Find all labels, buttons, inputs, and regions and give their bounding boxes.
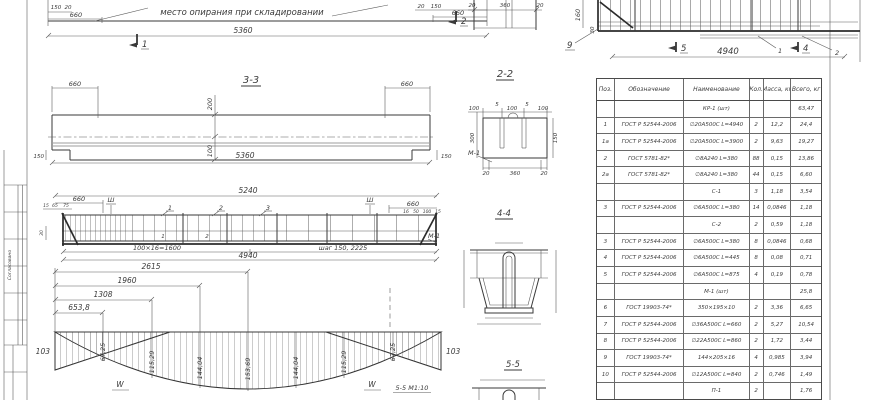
cell-mass [764,101,792,117]
cell-total: 1,49 [791,367,821,383]
moment-value-7: 67,25 [389,343,397,362]
moment-w-right: W [368,380,376,389]
cage-callout-1: 1 [778,47,782,55]
plan-dim-660-right: 660 [452,9,464,17]
moment-scale-note: 5-5 М1:10 [396,384,429,392]
cell-name: ∅20А500С L=3900 [684,134,749,150]
plan-dim-total: 5360 [233,26,252,35]
section-mark-4-arrow [790,46,798,51]
end-section-dim-20b: 20 [537,3,544,9]
cell-qty: 8 [750,234,764,250]
reinf-dim-4940: 4940 [238,251,257,260]
cell-name: ∅6А500С L=380 [684,201,749,217]
moment-w-left: W [116,380,124,389]
cell-doc [615,217,684,233]
reinf-dim-65: 65 [52,203,58,209]
cell-total: 19,27 [791,134,821,150]
reinf-dim-5240: 5240 [238,186,257,195]
s33-dim-150-right: 150 [441,154,452,160]
column-header-mass: Масса, кг [764,79,792,100]
s22-dim-5b: 5 [525,102,529,108]
cell-pos: 3 [597,201,615,217]
cage-dim-total: 4940 [717,47,739,57]
s33-dim-150-left: 150 [34,154,45,160]
reinf-dim-50: 50 [413,209,419,215]
cell-mass: 1,72 [764,334,792,350]
cell-pos [597,101,615,117]
column-header-name: Наименование [684,79,749,100]
cell-mass: 0,746 [764,367,792,383]
moment-dim-1960: 1960 [117,276,136,285]
cell-qty [750,101,764,117]
table-row: 1аГОСТ Р 52544-2006∅20А500С L=390029,631… [597,134,821,151]
moment-value-3: 144,04 [196,357,204,380]
cell-mass: 0,08 [764,250,792,266]
table-row: 3ГОСТ Р 52544-2006∅6А500С L=38080,08460,… [597,234,821,251]
cell-doc: ГОСТ 19903-74* [615,350,684,366]
table-row: П-121,76 [597,383,821,399]
s22-dim-100b: 100 [507,106,518,112]
table-row: 2аГОСТ 5781-82*∅8А240 L=380440,156,60 [597,167,821,184]
cell-doc: ГОСТ Р 52544-2006 [615,267,684,283]
section-4-4-view: 4-4 [464,209,556,324]
section-mark-2-arrow [448,20,456,25]
cell-doc: ГОСТ Р 52544-2006 [615,134,684,150]
cell-mass: 0,15 [764,151,792,167]
cell-name: ∅8А240 L=380 [684,151,749,167]
moment-dim-1308: 1308 [93,290,112,299]
reinf-dim-seg2: шаг 150, 2225 [319,244,368,252]
table-row: 8ГОСТ Р 52544-2006∅22А500С L=86021,723,4… [597,334,821,351]
cell-mass: 0,19 [764,267,792,283]
cell-doc: ГОСТ Р 52544-2006 [615,317,684,333]
table-row: 3ГОСТ Р 52544-2006∅6А500С L=380140,08461… [597,201,821,218]
cell-mass: 0,59 [764,217,792,233]
table-row: 9ГОСТ 19903-74*144×205×1640,9853,94 [597,350,821,367]
cell-total: 25,8 [791,284,821,300]
moment-value-6: 115,29 [340,351,348,374]
cell-qty: 2 [750,118,764,134]
moment-dim-653: 653,8 [68,303,90,312]
cell-pos: 2а [597,167,615,183]
cell-name: П-1 [684,383,749,399]
cell-doc [615,284,684,300]
cell-name: ∅6А500С L=380 [684,234,749,250]
storage-plan-view: 150 20 660 20 150 660 место опирания при… [46,0,489,50]
s22-dim-20b: 20 [541,171,548,177]
reinf-stirrups-wide [260,215,437,241]
cell-name: ∅8А240 L=380 [684,167,749,183]
section-5-5-title: 5-5 [506,360,520,370]
cage-elevation-view: 160 30 9 4940 5 4 1 2 [565,0,860,59]
column-header-pos: Поз. [597,79,615,100]
reinf-dim-16: 16 [403,209,409,215]
section-mark-4: 4 [803,44,808,54]
cell-doc: ГОСТ Р 52544-2006 [615,234,684,250]
cell-name: 350×195×10 [684,300,749,316]
s22-dim-360: 360 [510,171,521,177]
cell-pos: 8 [597,334,615,350]
cell-mass: 1,18 [764,184,792,200]
drawing-sheet: Согласовано 150 20 660 20 150 660 место … [0,0,870,400]
cell-name: М-1 (шт) [684,284,749,300]
cage-pos-9: 9 [567,41,572,51]
cell-qty: 14 [750,201,764,217]
cell-pos: 4 [597,250,615,266]
cell-pos: 1 [597,118,615,134]
cell-qty: 2 [750,383,764,399]
moment-value-5: 144,04 [292,357,300,380]
cell-mass: 0,15 [764,167,792,183]
cell-doc: ГОСТ Р 52544-2006 [615,250,684,266]
section-mark-5-arrow [668,46,676,51]
cell-doc [615,184,684,200]
cell-total: 24,4 [791,118,821,134]
reinf-bar-label-1: 1 [161,234,165,240]
s22-dim-5a: 5 [495,102,499,108]
cell-qty: 2 [750,334,764,350]
column-header-doc: Обозначение [615,79,684,100]
cell-total: 1,18 [791,201,821,217]
end-section-dim-20a: 20 [469,3,476,9]
cell-qty: 2 [750,317,764,333]
cell-mass: 0,985 [764,350,792,366]
table-row: 2ГОСТ 5781-82*∅8А240 L=380880,1513,86 [597,151,821,168]
reinf-dim-30: 30 [39,230,45,236]
s33-dim-200: 200 [206,98,214,110]
table-row: 4ГОСТ Р 52544-2006∅6А500С L=44580,080,71 [597,250,821,267]
table-row: 1ГОСТ Р 52544-2006∅20А500С L=4940212,224… [597,118,821,135]
cell-qty: 2 [750,300,764,316]
s22-dim-100c: 100 [538,106,549,112]
section-mark-2: 2 [461,17,466,27]
cell-qty: 2 [750,367,764,383]
cell-mass: 3,36 [764,300,792,316]
section-mark-1: 1 [142,40,147,50]
cell-qty: 2 [750,134,764,150]
cell-name: ∅6А500С L=875 [684,267,749,283]
spec-rows: КР-1 (шт)63,471ГОСТ Р 52544-2006∅20А500С… [597,101,821,399]
cell-name: С-1 [684,184,749,200]
cell-doc: ГОСТ Р 52544-2006 [615,118,684,134]
section-mark-1-arrow [129,43,137,48]
reinforcement-elevation-view: 5240 660 Ш 15 65 75 30 1 2 3 [39,186,441,262]
table-row: С-131,183,54 [597,184,821,201]
cell-mass: 5,27 [764,317,792,333]
cell-name: ∅12А500С L=840 [684,367,749,383]
cell-pos [597,284,615,300]
plan-dim-660-left: 660 [70,11,82,19]
reinf-dim-660-right: 660 [407,200,419,208]
reinf-mesh-mark-left: Ш [108,196,115,204]
cell-qty: 44 [750,167,764,183]
cell-name: ∅6А500С L=445 [684,250,749,266]
section-4-4-title: 4-4 [497,209,511,219]
cell-qty: 4 [750,350,764,366]
cell-mass: 9,63 [764,134,792,150]
cell-pos [597,217,615,233]
stamp-approve-label: Согласовано [7,250,13,280]
cell-total: 0,71 [791,250,821,266]
cell-pos: 5 [597,267,615,283]
cell-mass [764,284,792,300]
cell-qty: 8 [750,250,764,266]
reinf-dim-15: 15 [43,203,49,209]
cell-pos: 9 [597,350,615,366]
s22-dim-20a: 20 [483,171,490,177]
cell-pos [597,184,615,200]
cell-total: 1,18 [791,217,821,233]
cell-doc: ГОСТ 5781-82* [615,151,684,167]
cell-pos: 10 [597,367,615,383]
table-row: 10ГОСТ Р 52544-2006∅12А500С L=84020,7461… [597,367,821,384]
section-mark-5: 5 [681,44,686,54]
cell-doc: ГОСТ Р 52544-2006 [615,334,684,350]
cell-total: 0,78 [791,267,821,283]
cell-doc: ГОСТ Р 52544-2006 [615,367,684,383]
cell-doc: ГОСТ 5781-82* [615,167,684,183]
moment-value-2: 115,29 [148,351,156,374]
cell-mass [764,383,792,399]
cell-qty: 4 [750,267,764,283]
cell-total: 10,54 [791,317,821,333]
cell-total: 0,68 [791,234,821,250]
s33-dim-total: 5360 [235,151,254,160]
reinf-dim-15b: 15 [435,209,441,215]
cell-name: ∅20А500С L=4940 [684,118,749,134]
table-row: 6ГОСТ 19903-74*350×195×1023,366,65 [597,300,821,317]
cell-doc: ГОСТ 19903-74* [615,300,684,316]
table-row: С-220,591,18 [597,217,821,234]
cell-pos: 2 [597,151,615,167]
s22-dim-300: 300 [470,132,476,143]
cell-pos [597,383,615,399]
table-row: КР-1 (шт)63,47 [597,101,821,118]
end-section-dim-360: 360 [500,3,511,9]
reinf-dim-75: 75 [63,203,69,209]
s33-dim-660-left: 660 [69,80,81,88]
section-2-2-view: 2-2 100 5 100 5 100 300 150 М-1 20 360 2… [468,69,559,177]
table-row: 5ГОСТ Р 52544-2006∅6А500С L=87540,190,78 [597,267,821,284]
cell-pos: 1а [597,134,615,150]
cell-qty: 3 [750,184,764,200]
s22-dim-100a: 100 [469,106,480,112]
cell-mass: 0,0846 [764,201,792,217]
cell-doc: ГОСТ Р 52544-2006 [615,201,684,217]
moment-end-value-left: 103 [36,347,51,356]
s22-dim-150: 150 [553,132,559,143]
cage-callout-2: 2 [835,49,839,57]
cell-total: 6,60 [791,167,821,183]
cell-total: 3,54 [791,184,821,200]
storage-note: место опирания при складировании [160,8,324,18]
column-header-total: Всего, кг [791,79,821,100]
end-section-view: 20 360 20 [468,0,544,30]
cell-pos: 6 [597,300,615,316]
moment-diagram-view: 2615 1960 1308 653,8 103 103 67,25 115,2… [36,262,461,393]
reinf-stirrups-medium [130,215,260,241]
moment-value-1: 67,25 [99,343,107,362]
section-2-2-title: 2-2 [497,69,513,80]
specification-table: Поз. Обозначение Наименование Кол. Масса… [596,78,822,400]
cell-total: 3,94 [791,350,821,366]
cell-doc [615,383,684,399]
cell-name: ∅36А500С L=660 [684,317,749,333]
s33-dim-660-right: 660 [401,80,413,88]
moment-value-4: 153,69 [244,358,252,381]
cell-qty: 88 [750,151,764,167]
specification-table-header: Поз. Обозначение Наименование Кол. Масса… [597,79,821,101]
cell-pos: 7 [597,317,615,333]
cell-name: КР-1 (шт) [684,101,749,117]
section-3-3-view: 3-3 660 660 200 100 5360 150 150 [34,75,452,165]
section-5-5-view: 5-5 [472,360,546,400]
cell-mass: 0,0846 [764,234,792,250]
cell-name: С-2 [684,217,749,233]
cage-dim-160: 160 [574,9,582,21]
reinf-stirrups-dense [62,215,130,241]
section-3-3-title: 3-3 [243,75,259,86]
cell-total: 3,44 [791,334,821,350]
plan-dim-150-left: 150 [51,5,62,11]
reinf-dim-seg1: 100×16=1600 [133,244,181,252]
reinf-dim-100: 100 [423,209,432,215]
cell-total: 1,76 [791,383,821,399]
cell-doc [615,101,684,117]
cell-total: 63,47 [791,101,821,117]
table-row: 7ГОСТ Р 52544-2006∅36А500С L=66025,2710,… [597,317,821,334]
plan-dim-150-right: 150 [431,4,442,10]
moment-end-value-right: 103 [446,347,461,356]
table-row: М-1 (шт)25,8 [597,284,821,301]
reinf-m1-label: М-1 [428,232,440,240]
s33-dim-100: 100 [206,145,214,157]
cell-name: 144×205×16 [684,350,749,366]
reinf-mesh-mark-right: Ш [367,196,374,204]
cell-name: ∅22А500С L=860 [684,334,749,350]
reinf-dim-660-left: 660 [73,195,85,203]
column-header-qty: Кол. [750,79,764,100]
cell-mass: 12,2 [764,118,792,134]
cell-qty [750,284,764,300]
cell-total: 13,86 [791,151,821,167]
cell-qty: 2 [750,217,764,233]
cell-total: 6,65 [791,300,821,316]
plan-dim-20-right: 20 [418,4,425,10]
reinf-bar-label-2: 2 [205,234,209,240]
cell-pos: 3 [597,234,615,250]
moment-dim-2615: 2615 [141,262,160,271]
